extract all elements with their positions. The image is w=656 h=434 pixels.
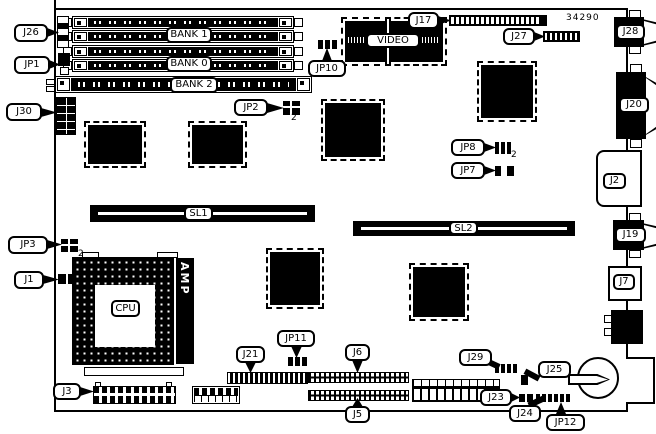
- slot-tab: [294, 18, 303, 27]
- j30-callout: J30: [6, 103, 42, 121]
- simm-clip-icon: [279, 32, 292, 41]
- simm-clip-icon: [279, 47, 292, 56]
- slot-tab: [46, 79, 55, 85]
- simm-clip-icon: [279, 61, 292, 70]
- j20-label: J20: [619, 97, 649, 113]
- jp8-callout: JP8: [451, 139, 485, 156]
- j1-callout: J1: [14, 271, 44, 289]
- jp2-pin2-label: 2: [291, 113, 297, 123]
- jp3-pin2-label: 2: [78, 249, 84, 259]
- socket-lever-bar: [84, 367, 184, 376]
- sl2-label: SL2: [449, 221, 478, 235]
- bank1-label: BANK 1: [166, 27, 212, 43]
- j29-callout: J29: [459, 349, 492, 366]
- simm-clip-icon: [74, 47, 87, 56]
- j26-callout: J26: [14, 24, 48, 42]
- jp3-jumper: [61, 239, 78, 252]
- motherboard-diagram: BANK 1 BANK 0 BANK 2 VIDEO SL1 SL2 CPU A…: [0, 0, 656, 434]
- ic-chip: [192, 125, 243, 164]
- simm-clip-icon: [74, 32, 87, 41]
- bank0-label: BANK 0: [166, 56, 212, 72]
- j5-header: [308, 390, 409, 401]
- part-number: 34290: [566, 13, 600, 23]
- audio-jack-block: [611, 310, 643, 344]
- ic-chip: [481, 65, 533, 118]
- pin-dots: [422, 37, 438, 43]
- j17-connector: [449, 15, 547, 26]
- ic-chip: [88, 125, 142, 164]
- j5-callout: J5: [345, 406, 370, 423]
- j17-endcap: [540, 15, 547, 26]
- j26-connector: [57, 16, 69, 48]
- simm-clip-icon: [57, 78, 70, 91]
- bank2-label: BANK 2: [170, 77, 218, 93]
- jp10-jumper: [318, 40, 338, 49]
- j23-callout: J23: [480, 389, 512, 406]
- j17-callout: J17: [408, 12, 439, 29]
- slot-tab: [294, 61, 303, 70]
- j7-label: J7: [613, 274, 635, 290]
- port-screw-tab: [629, 46, 641, 54]
- j2-label: J2: [603, 173, 626, 189]
- j25-connector: [521, 375, 528, 385]
- simm-clip-icon: [74, 61, 87, 70]
- j6-callout: J6: [345, 344, 370, 361]
- slot-tab: [46, 86, 55, 92]
- j6-header: [308, 372, 409, 383]
- jp1-callout: JP1: [14, 56, 50, 74]
- j21-header: [227, 372, 308, 384]
- simm-clip-icon: [74, 18, 87, 27]
- slot-tab: [294, 32, 303, 41]
- jp11-jumper: [288, 357, 308, 366]
- jp8-jumper: [495, 142, 511, 154]
- simm-clip-icon: [297, 78, 310, 91]
- ic-chip: [325, 103, 381, 157]
- j27-connector: [543, 31, 580, 42]
- slot-tab: [294, 47, 303, 56]
- jp11-callout: JP11: [277, 330, 315, 347]
- port-screw-tab: [630, 139, 642, 148]
- jp1-jumper-cap: [60, 67, 69, 75]
- power-connector: [192, 386, 240, 404]
- ic-chip: [270, 252, 320, 305]
- j3-callout: J3: [53, 383, 81, 400]
- j27-callout: J27: [503, 28, 535, 45]
- board-outline-extension: [626, 357, 655, 404]
- board-left-edge-top: [54, 0, 56, 10]
- jp7-callout: JP7: [451, 162, 485, 179]
- jp3-callout: JP3: [8, 236, 48, 254]
- jp2-callout: JP2: [234, 99, 268, 116]
- jp1-connector: [58, 53, 70, 66]
- j28-label: J28: [616, 24, 645, 40]
- jp12-connector: [554, 394, 571, 402]
- jp8-pin2-label: 2: [511, 150, 517, 160]
- j21-callout: J21: [236, 346, 265, 363]
- jp7-jumper: [495, 166, 514, 176]
- simm-clip-icon: [279, 18, 292, 27]
- cpu-label: CPU: [111, 300, 140, 317]
- ic-chip: [413, 267, 465, 317]
- j25-callout: J25: [538, 361, 571, 378]
- j30-connector: [56, 97, 76, 135]
- video-label: VIDEO: [366, 33, 420, 48]
- j1-connector: [58, 274, 72, 284]
- j19-label: J19: [615, 227, 646, 243]
- amp-label: AMP: [178, 262, 191, 296]
- sl1-label: SL1: [184, 206, 213, 221]
- jp10-callout: JP10: [308, 60, 346, 77]
- jp12-callout: JP12: [546, 414, 585, 431]
- j3-connector: [93, 386, 176, 404]
- pin-dots: [348, 37, 364, 43]
- j24-callout: J24: [509, 405, 541, 422]
- port-screw-tab: [629, 250, 641, 258]
